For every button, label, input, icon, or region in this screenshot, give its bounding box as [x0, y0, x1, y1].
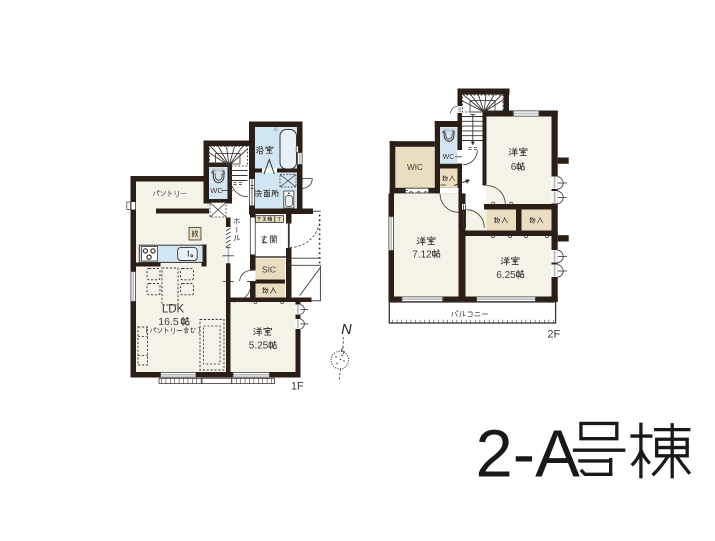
svg-text:2F: 2F [547, 329, 560, 341]
svg-text:6.25: 6.25 [496, 270, 516, 281]
svg-text:2-A: 2-A [476, 416, 581, 491]
svg-text:1F: 1F [291, 380, 304, 392]
svg-text:WC: WC [443, 154, 455, 161]
svg-text:T: T [277, 217, 281, 223]
svg-text:WIC: WIC [407, 163, 423, 172]
svg-text:5.25: 5.25 [249, 341, 269, 352]
svg-text:WC: WC [210, 186, 223, 195]
svg-text:SIC: SIC [262, 265, 276, 275]
svg-text:N: N [341, 322, 352, 338]
svg-text:6: 6 [511, 162, 517, 173]
svg-text:LDK: LDK [162, 304, 185, 316]
svg-text:7.12: 7.12 [412, 249, 432, 260]
svg-text:16.5: 16.5 [158, 316, 179, 328]
